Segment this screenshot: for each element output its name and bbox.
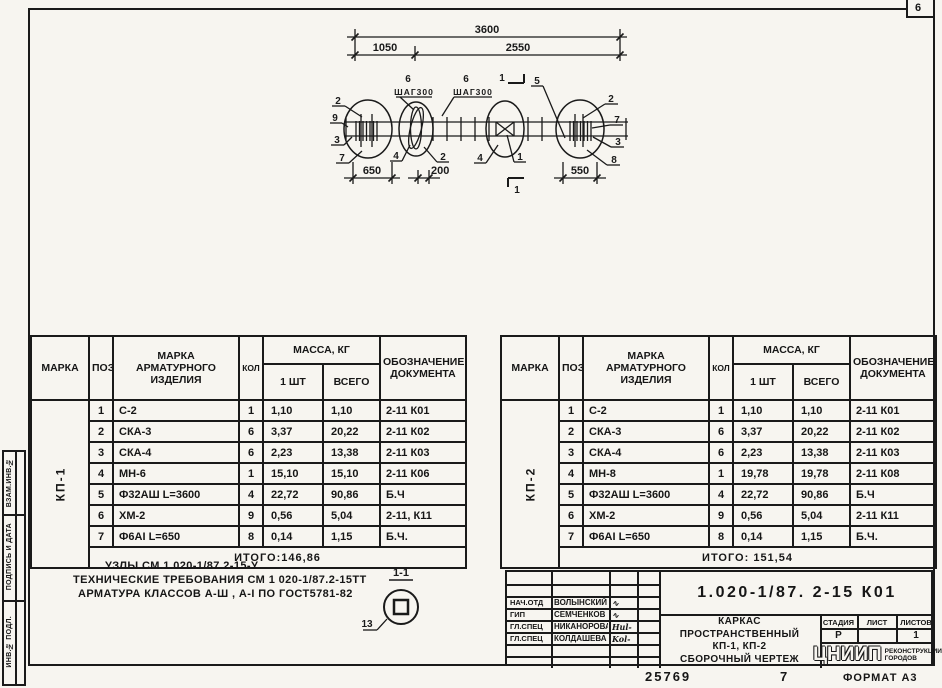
spec-cell-poz: 4 bbox=[89, 463, 113, 484]
signer-name: СЕМЧЕНКОВ bbox=[554, 610, 608, 619]
note-tt: ТЕХНИЧЕСКИЕ ТРЕБОВАНИЯ СМ 1 020-1/87.2-1… bbox=[73, 574, 367, 586]
spec-cell-poz: 6 bbox=[89, 505, 113, 526]
signer-role: НАЧ.ОТД bbox=[510, 598, 550, 607]
spec-cell-name: СКА-3 bbox=[583, 421, 709, 442]
title-line: СБОРОЧНЫЙ ЧЕРТЕЖ bbox=[680, 654, 799, 667]
spec-cell-name: СКА-4 bbox=[583, 442, 709, 463]
shag2-label: ШАГ300 bbox=[453, 87, 493, 97]
spec-cell-name: МН-6 bbox=[113, 463, 239, 484]
spec-cell-all: 1,10 bbox=[793, 400, 850, 421]
spec-row: 2СКА-363,3720,222-11 К02 bbox=[501, 421, 936, 442]
spec-cell-name: С-2 bbox=[583, 400, 709, 421]
spec-cell-all: 1,15 bbox=[793, 526, 850, 547]
shag1-label: ШАГ300 bbox=[394, 87, 434, 97]
hdr-marka: МАРКА bbox=[501, 336, 559, 400]
sheet-header: ЛИСТ bbox=[858, 618, 896, 627]
mark-label: КП-1 bbox=[53, 467, 67, 502]
spec-cell-doc: 2-11, К11 bbox=[380, 505, 466, 526]
spec-cell-all: 1,15 bbox=[323, 526, 380, 547]
spec-row: 6ХМ-290,565,042-11, К11 bbox=[31, 505, 466, 526]
title-line: ПРОСТРАНСТВЕННЫЙ bbox=[680, 629, 800, 642]
hdr-poz: ПОЗ. bbox=[559, 336, 583, 400]
mark-label: КП-2 bbox=[523, 467, 537, 502]
spec-cell-one: 2,23 bbox=[263, 442, 323, 463]
detail-title: 1-1 bbox=[393, 567, 409, 579]
title-line: КП-1, КП-2 bbox=[713, 641, 767, 654]
spec-cell-qty: 6 bbox=[709, 442, 733, 463]
spec-row: 5Ф32АШ L=3600422,7290,86Б.Ч bbox=[31, 484, 466, 505]
spec-cell-doc: 2-11 К02 bbox=[380, 421, 466, 442]
hdr-total: ВСЕГО bbox=[323, 364, 380, 400]
callout: 2 bbox=[440, 152, 446, 163]
spec-cell-qty: 1 bbox=[239, 463, 263, 484]
dim-650: 650 bbox=[363, 165, 381, 177]
signer-role: ГЛ.СПЕЦ bbox=[510, 634, 550, 643]
spec-cell-qty: 1 bbox=[709, 400, 733, 421]
spec-cell-name: Ф32АШ L=3600 bbox=[583, 484, 709, 505]
callout: 3 bbox=[334, 135, 340, 146]
sheets-header: ЛИСТОВ bbox=[897, 618, 935, 627]
spec-cell-one: 0,14 bbox=[263, 526, 323, 547]
spec-table-kp1: МАРКА ПОЗ. МАРКА АРМАТУРНОГО ИЗДЕЛИЯ КОЛ… bbox=[30, 335, 467, 569]
dim-550: 550 bbox=[571, 165, 589, 177]
spec-cell-one: 22,72 bbox=[733, 484, 793, 505]
spec-cell-qty: 6 bbox=[239, 421, 263, 442]
spec-cell-poz: 5 bbox=[89, 484, 113, 505]
spec-cell-all: 5,04 bbox=[323, 505, 380, 526]
spec-row: 4МН-6115,1015,102-11 К06 bbox=[31, 463, 466, 484]
hdr-doc: ОБОЗНАЧЕНИЕ ДОКУМЕНТА bbox=[380, 336, 466, 400]
spec-cell-all: 13,38 bbox=[323, 442, 380, 463]
detail-1-1: 1-1 13 bbox=[355, 558, 445, 650]
callout: 9 bbox=[332, 113, 338, 124]
spec-row: 6ХМ-290,565,042-11 К11 bbox=[501, 505, 936, 526]
spec-cell-qty: 8 bbox=[709, 526, 733, 547]
spec-cell-qty: 1 bbox=[239, 400, 263, 421]
spec-cell-all: 5,04 bbox=[793, 505, 850, 526]
spec-cell-qty: 8 bbox=[239, 526, 263, 547]
spec-cell-all: 13,38 bbox=[793, 442, 850, 463]
spec-cell-one: 22,72 bbox=[263, 484, 323, 505]
signer-signature: Hul- bbox=[612, 622, 636, 632]
spec-cell-qty: 1 bbox=[709, 463, 733, 484]
spec-cell-doc: Б.Ч. bbox=[850, 526, 936, 547]
signer-signature: Kol- bbox=[612, 634, 636, 644]
spec-cell-poz: 1 bbox=[89, 400, 113, 421]
spec-cell-poz: 4 bbox=[559, 463, 583, 484]
hdr-qty: КОЛ bbox=[709, 336, 733, 400]
spec-cell-name: СКА-4 bbox=[113, 442, 239, 463]
signer-signature: ∿ bbox=[612, 610, 636, 620]
title-block: НАЧ.ОТДВОЛЫНСКИЙ∿ГИПСЕМЧЕНКОВ∿ГЛ.СПЕЦНИК… bbox=[505, 570, 933, 666]
hdr-marka: МАРКА bbox=[31, 336, 89, 400]
spec-cell-one: 15,10 bbox=[263, 463, 323, 484]
spec-cell-all: 19,78 bbox=[793, 463, 850, 484]
spec-cell-name: Ф6АI L=650 bbox=[113, 526, 239, 547]
org-name-line: ГОРОДОВ bbox=[885, 655, 942, 663]
hdr-poz: ПОЗ. bbox=[89, 336, 113, 400]
spec-row: КП-21С-211,101,102-11 К01 bbox=[501, 400, 936, 421]
callout: 2 bbox=[608, 94, 614, 105]
spec-cell-doc: 2-11 К03 bbox=[850, 442, 936, 463]
spec-total: ИТОГО: 151,54 bbox=[559, 547, 936, 568]
spec-cell-doc: 2-11 К06 bbox=[380, 463, 466, 484]
spec-cell-poz: 7 bbox=[89, 526, 113, 547]
spec-cell-doc: 2-11 К11 bbox=[850, 505, 936, 526]
margin-strip: ВЗАМ.ИНВ.№ ПОДПИСЬ И ДАТА ИНВ.№ ПОДЛ. bbox=[2, 450, 26, 686]
spec-cell-one: 19,78 bbox=[733, 463, 793, 484]
shag1-pos: 6 bbox=[405, 74, 411, 85]
spec-cell-doc: 2-11 К02 bbox=[850, 421, 936, 442]
spec-row: 7Ф6АI L=65080,141,15Б.Ч. bbox=[31, 526, 466, 547]
dim-200: 200 bbox=[431, 165, 449, 177]
signer-role: ГИП bbox=[510, 610, 550, 619]
spec-cell-qty: 4 bbox=[239, 484, 263, 505]
spec-row: 3СКА-462,2313,382-11 К03 bbox=[31, 442, 466, 463]
title-line: КАРКАС bbox=[718, 616, 761, 629]
spec-cell-one: 3,37 bbox=[263, 421, 323, 442]
spec-cell-name: ХМ-2 bbox=[113, 505, 239, 526]
section-bottom-label: 1 bbox=[514, 185, 520, 196]
org-abbr: ЦНИИП bbox=[813, 644, 882, 666]
callout: 7 bbox=[339, 153, 345, 164]
org-name: РЕКОНСТРУКЦИИ ГОРОДОВ bbox=[885, 648, 942, 663]
footer-number: 7 bbox=[780, 669, 787, 684]
spec-cell-doc: 2-11 К01 bbox=[380, 400, 466, 421]
spec-cell-name: С-2 bbox=[113, 400, 239, 421]
spec-cell-doc: 2-11 К01 bbox=[850, 400, 936, 421]
spec-cell-name: Ф32АШ L=3600 bbox=[113, 484, 239, 505]
org-name-line: РЕКОНСТРУКЦИИ bbox=[885, 648, 942, 656]
pos5-label: 5 bbox=[534, 76, 540, 87]
spec-cell-poz: 2 bbox=[559, 421, 583, 442]
margin-label-podpis: ПОДПИСЬ И ДАТА bbox=[6, 523, 13, 590]
spec-cell-one: 3,37 bbox=[733, 421, 793, 442]
sheets-value: 1 bbox=[897, 630, 935, 641]
spec-row: 2СКА-363,3720,222-11 К02 bbox=[31, 421, 466, 442]
hdr-name: МАРКА АРМАТУРНОГО ИЗДЕЛИЯ bbox=[583, 336, 709, 400]
spec-cell-one: 0,56 bbox=[733, 505, 793, 526]
spec-cell-all: 90,86 bbox=[793, 484, 850, 505]
spec-cell-poz: 3 bbox=[559, 442, 583, 463]
margin-label-inv: ИНВ.№ ПОДЛ. bbox=[6, 616, 13, 668]
spec-cell-one: 0,56 bbox=[263, 505, 323, 526]
frame-top bbox=[28, 8, 908, 10]
spec-row: КП-11С-211,101,102-11 К01 bbox=[31, 400, 466, 421]
callout: 1 bbox=[517, 152, 523, 163]
footer-format: ФОРМАТ А3 bbox=[843, 672, 918, 684]
drawing-title: КАРКАС ПРОСТРАНСТВЕННЫЙ КП-1, КП-2 СБОРО… bbox=[659, 614, 820, 668]
spec-cell-one: 1,10 bbox=[733, 400, 793, 421]
spec-cell-name: СКА-3 bbox=[113, 421, 239, 442]
spec-row: 3СКА-462,2313,382-11 К03 bbox=[501, 442, 936, 463]
spec-table-kp2: МАРКА ПОЗ. МАРКА АРМАТУРНОГО ИЗДЕЛИЯ КОЛ… bbox=[500, 335, 937, 569]
spec-cell-poz: 3 bbox=[89, 442, 113, 463]
note-uzly: УЗЛЫ СМ.1.020-1/87.2-15-У bbox=[105, 560, 258, 572]
note-armatura: АРМАТУРА КЛАССОВ А-Ш , А-I ПО ГОСТ5781-8… bbox=[78, 588, 353, 600]
hdr-qty: КОЛ bbox=[239, 336, 263, 400]
spec-cell-doc: Б.Ч bbox=[380, 484, 466, 505]
dim-seg2: 2550 bbox=[506, 42, 530, 54]
spec-cell-all: 90,86 bbox=[323, 484, 380, 505]
dim-total: 3600 bbox=[475, 24, 499, 36]
section-top-label: 1 bbox=[499, 73, 505, 84]
spec-cell-all: 20,22 bbox=[793, 421, 850, 442]
spec-cell-poz: 6 bbox=[559, 505, 583, 526]
stage-header: СТАДИЯ bbox=[820, 618, 857, 627]
footer-code: 25769 bbox=[645, 669, 691, 684]
hdr-total: ВСЕГО bbox=[793, 364, 850, 400]
margin-label-vzam: ВЗАМ.ИНВ.№ bbox=[6, 458, 13, 507]
hdr-name: МАРКА АРМАТУРНОГО ИЗДЕЛИЯ bbox=[113, 336, 239, 400]
spec-row: 7Ф6АI L=65080,141,15Б.Ч. bbox=[501, 526, 936, 547]
hdr-mass: МАССА, КГ bbox=[263, 336, 380, 364]
spec-cell-name: ХМ-2 bbox=[583, 505, 709, 526]
spec-row: 5Ф32АШ L=3600422,7290,86Б.Ч bbox=[501, 484, 936, 505]
spec-cell-poz: 5 bbox=[559, 484, 583, 505]
organization-logo: ЦНИИП РЕКОНСТРУКЦИИ ГОРОДОВ bbox=[820, 642, 935, 668]
callout: 3 bbox=[615, 137, 621, 148]
spec-row: 4МН-8119,7819,782-11 К08 bbox=[501, 463, 936, 484]
shag2-pos: 6 bbox=[463, 74, 469, 85]
spec-cell-one: 1,10 bbox=[263, 400, 323, 421]
spec-cell-doc: Б.Ч. bbox=[380, 526, 466, 547]
spec-cell-all: 20,22 bbox=[323, 421, 380, 442]
spec-cell-one: 0,14 bbox=[733, 526, 793, 547]
hdr-one: 1 ШТ bbox=[733, 364, 793, 400]
sheet-corner-mark: 6 bbox=[915, 2, 921, 14]
document-number: 1.020-1/87. 2-15 К01 bbox=[659, 572, 935, 614]
drawing-sheet: 6 bbox=[0, 0, 942, 688]
callout: 2 bbox=[335, 96, 341, 107]
spec-cell-poz: 7 bbox=[559, 526, 583, 547]
spec-cell-one: 2,23 bbox=[733, 442, 793, 463]
spec-total-row: ИТОГО: 151,54 bbox=[501, 547, 936, 568]
callout: 7 bbox=[614, 115, 620, 126]
signer-name: НИКАНОРОВА bbox=[554, 622, 608, 631]
spec-cell-name: Ф6АI L=650 bbox=[583, 526, 709, 547]
stage-value: Р bbox=[820, 630, 857, 641]
callout: 4 bbox=[393, 151, 399, 162]
callout: 4 bbox=[477, 153, 483, 164]
signer-name: ВОЛЫНСКИЙ bbox=[554, 598, 608, 607]
spec-cell-name: МН-8 bbox=[583, 463, 709, 484]
dim-seg1: 1050 bbox=[373, 42, 397, 54]
spec-cell-all: 15,10 bbox=[323, 463, 380, 484]
spec-cell-doc: Б.Ч bbox=[850, 484, 936, 505]
spec-cell-all: 1,10 bbox=[323, 400, 380, 421]
spec-cell-qty: 9 bbox=[239, 505, 263, 526]
spec-cell-qty: 9 bbox=[709, 505, 733, 526]
hdr-doc: ОБОЗНАЧЕНИЕ ДОКУМЕНТА bbox=[850, 336, 936, 400]
corner-box-bottom bbox=[906, 16, 935, 18]
spec-cell-doc: 2-11 К03 bbox=[380, 442, 466, 463]
spec-cell-poz: 2 bbox=[89, 421, 113, 442]
signer-role: ГЛ.СПЕЦ bbox=[510, 622, 550, 631]
spec-cell-qty: 6 bbox=[239, 442, 263, 463]
spec-cell-doc: 2-11 К08 bbox=[850, 463, 936, 484]
hdr-mass: МАССА, КГ bbox=[733, 336, 850, 364]
signer-name: КОЛДАШЕВА bbox=[554, 634, 608, 643]
detail-callout: 13 bbox=[361, 619, 373, 630]
signer-signature: ∿ bbox=[612, 598, 636, 608]
spec-cell-qty: 4 bbox=[709, 484, 733, 505]
spec-cell-qty: 6 bbox=[709, 421, 733, 442]
hdr-one: 1 ШТ bbox=[263, 364, 323, 400]
spec-cell-poz: 1 bbox=[559, 400, 583, 421]
callout: 8 bbox=[611, 155, 617, 166]
assembly-drawing: 3600 1050 2550 650 200 550 6 ШАГ300 6 ША… bbox=[330, 20, 650, 205]
